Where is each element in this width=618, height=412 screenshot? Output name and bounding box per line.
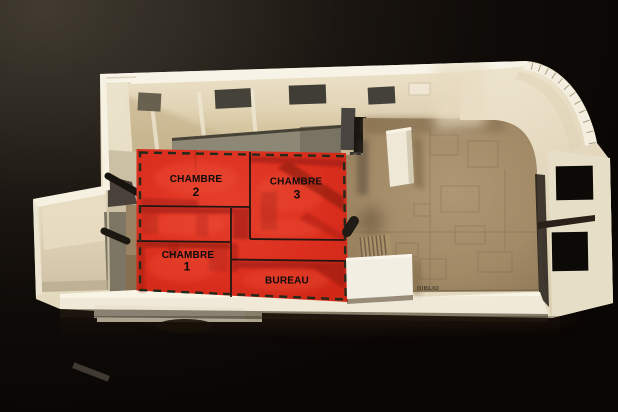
svg-text:CHAMBRE: CHAMBRE <box>270 177 323 188</box>
svg-text:CHAMBRE: CHAMBRE <box>170 174 223 185</box>
svg-text:1: 1 <box>184 260 191 274</box>
svg-text:3: 3 <box>294 188 301 202</box>
svg-text:2: 2 <box>193 185 200 199</box>
svg-text:BUREAU: BUREAU <box>265 276 309 287</box>
